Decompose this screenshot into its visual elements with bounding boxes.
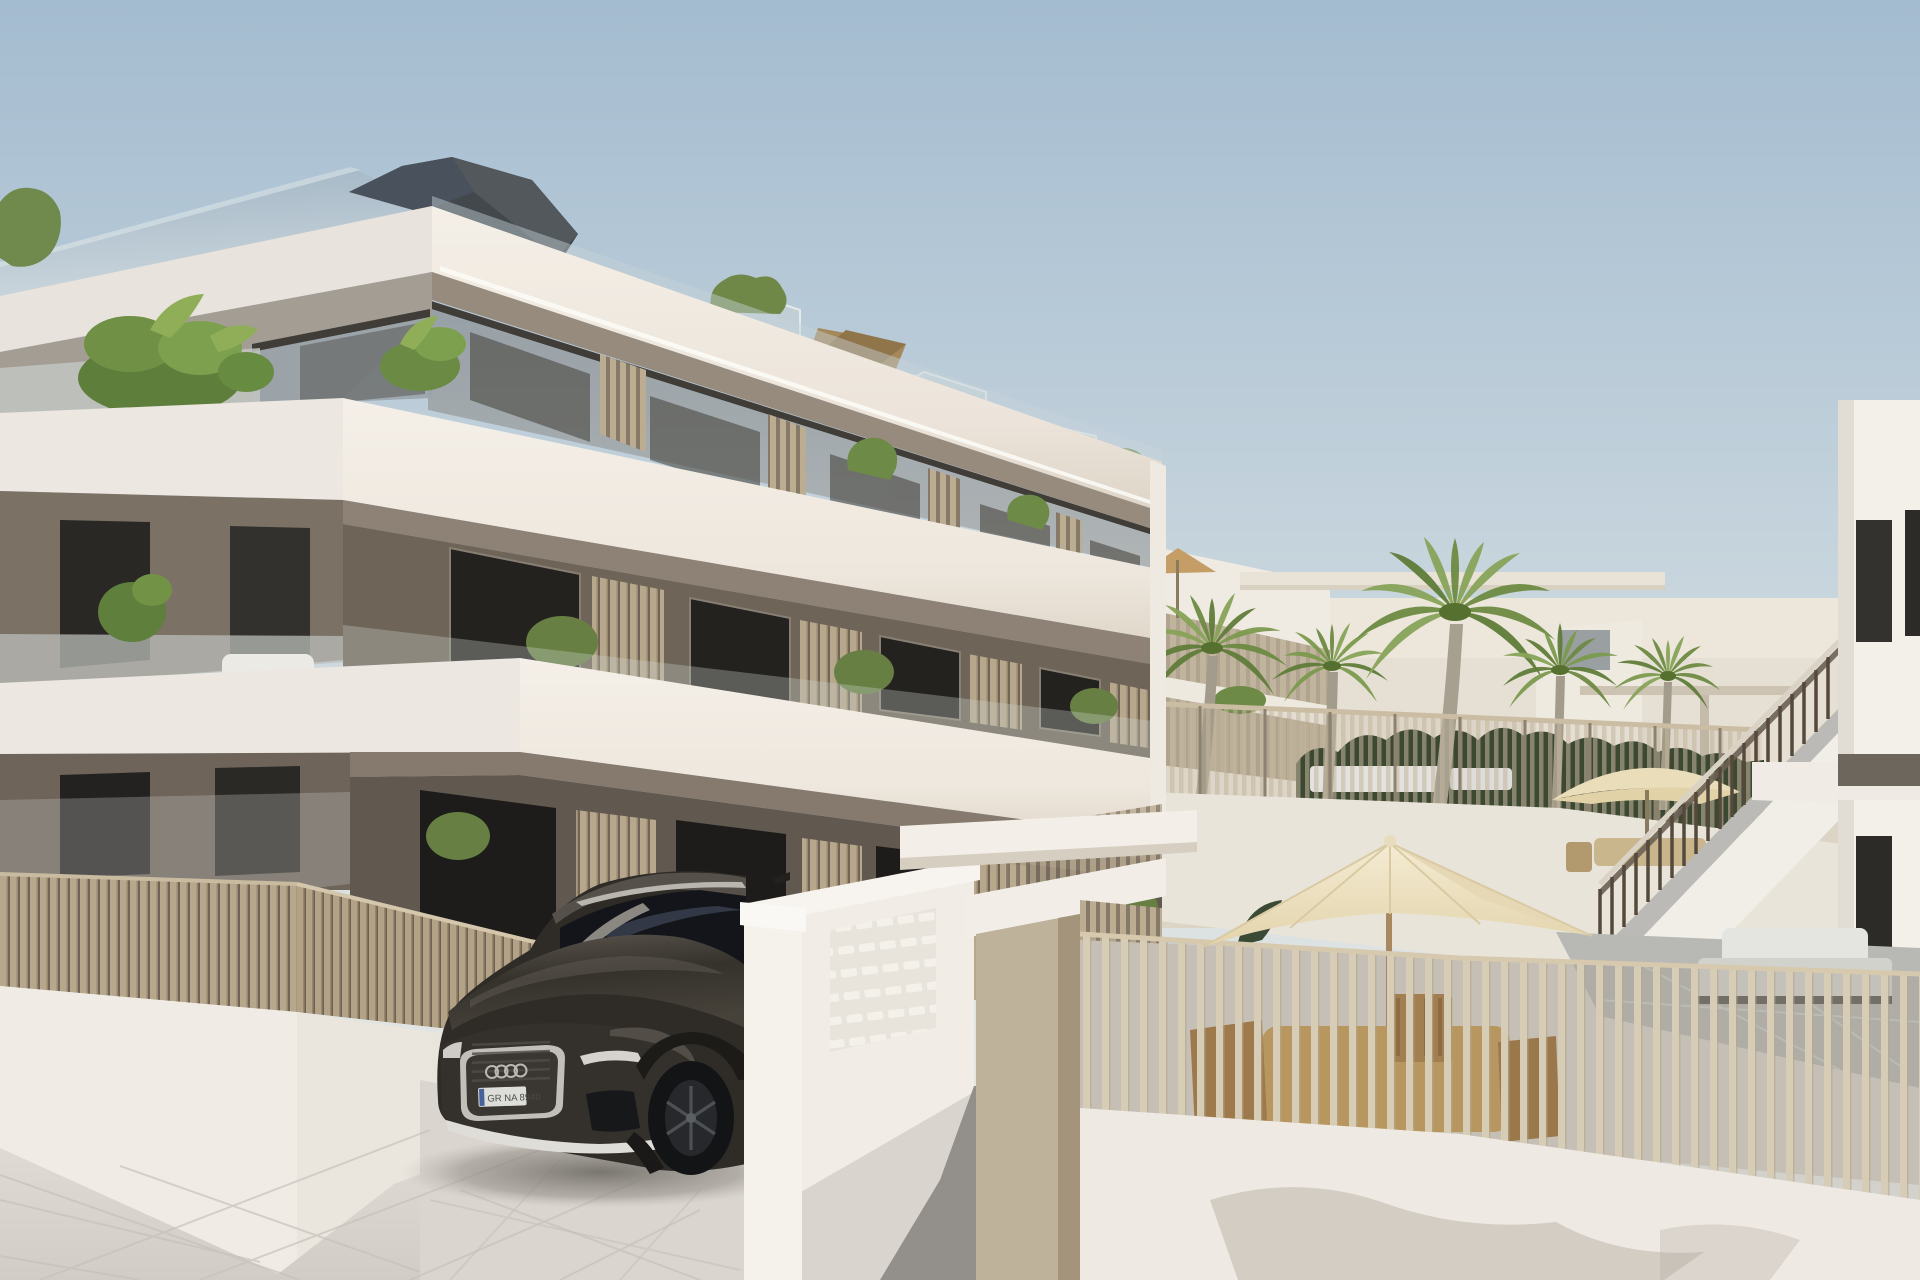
- svg-text:GR NA 8940: GR NA 8940: [487, 1092, 541, 1105]
